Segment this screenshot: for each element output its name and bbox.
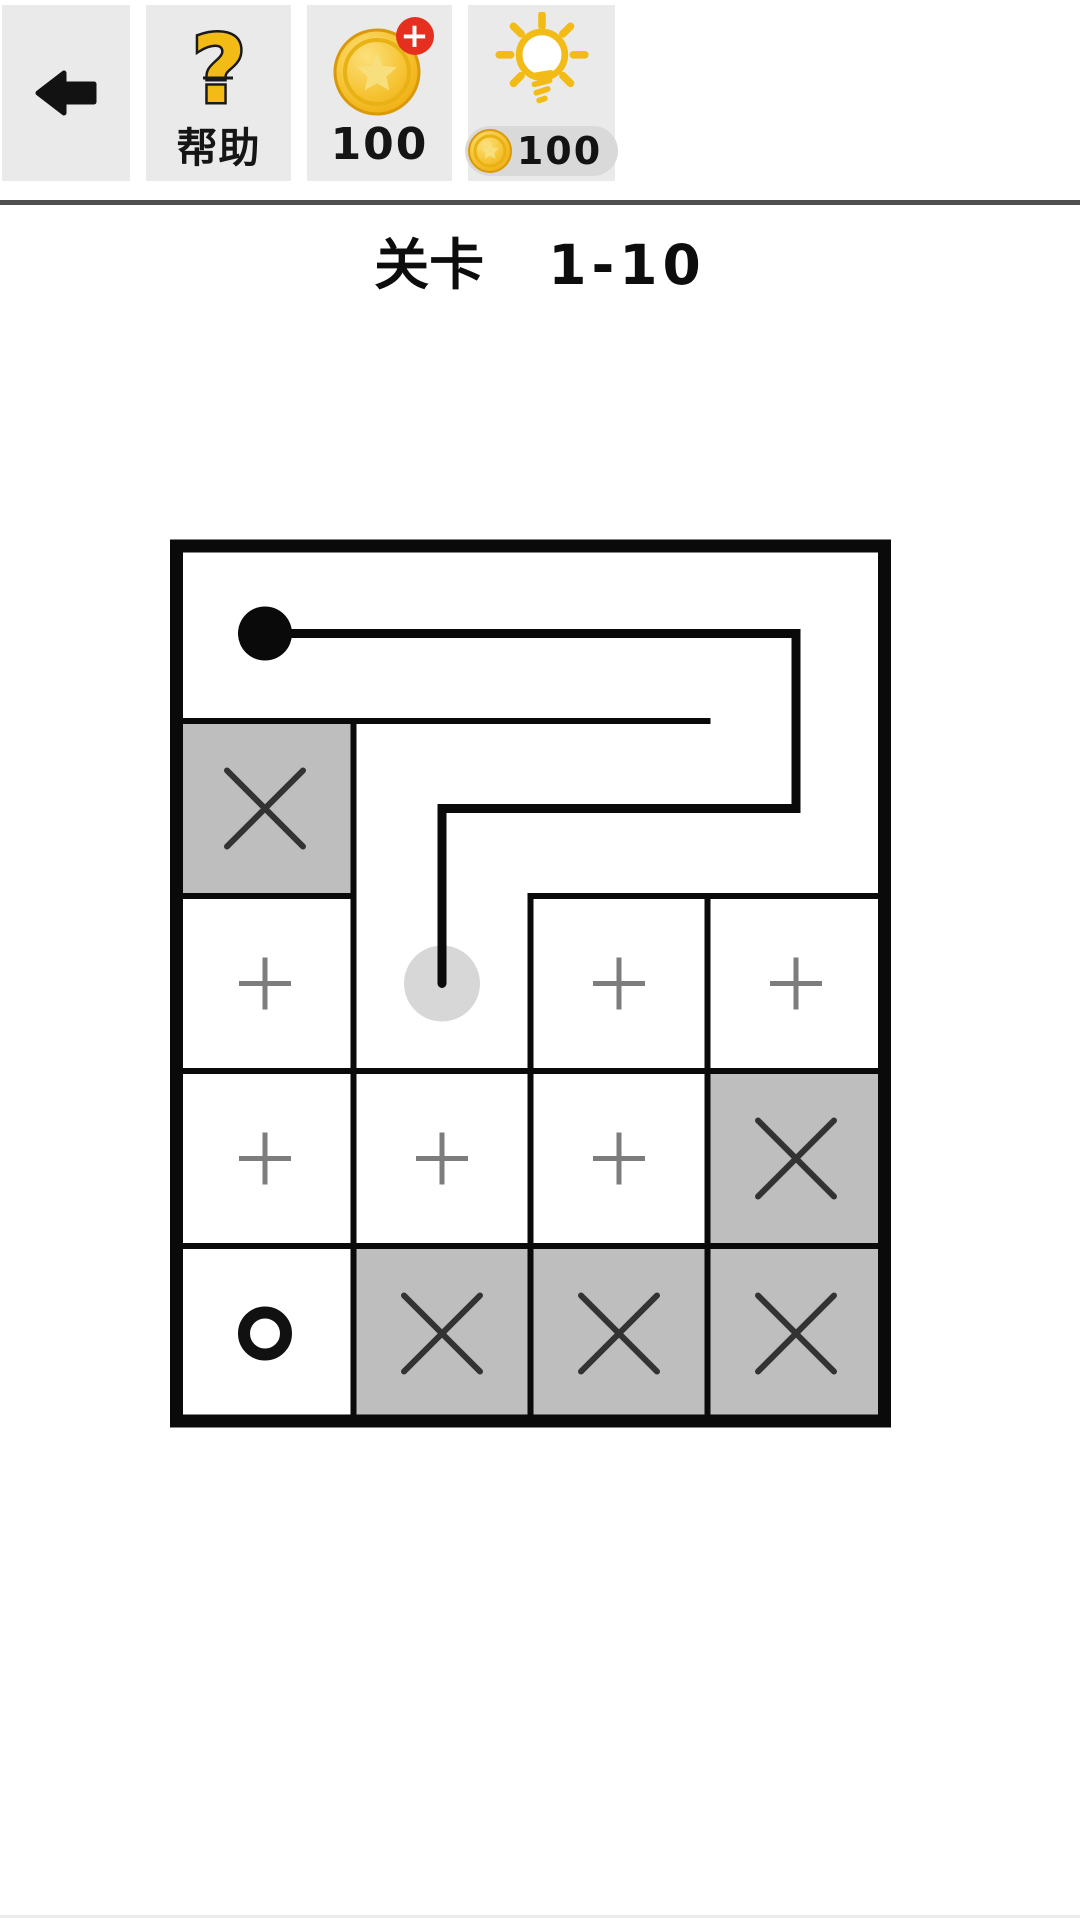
puzzle-board[interactable] [0, 0, 1080, 1920]
start-dot [238, 607, 292, 661]
goal-ring [244, 1313, 286, 1355]
bottom-edge-line [0, 1915, 1080, 1918]
